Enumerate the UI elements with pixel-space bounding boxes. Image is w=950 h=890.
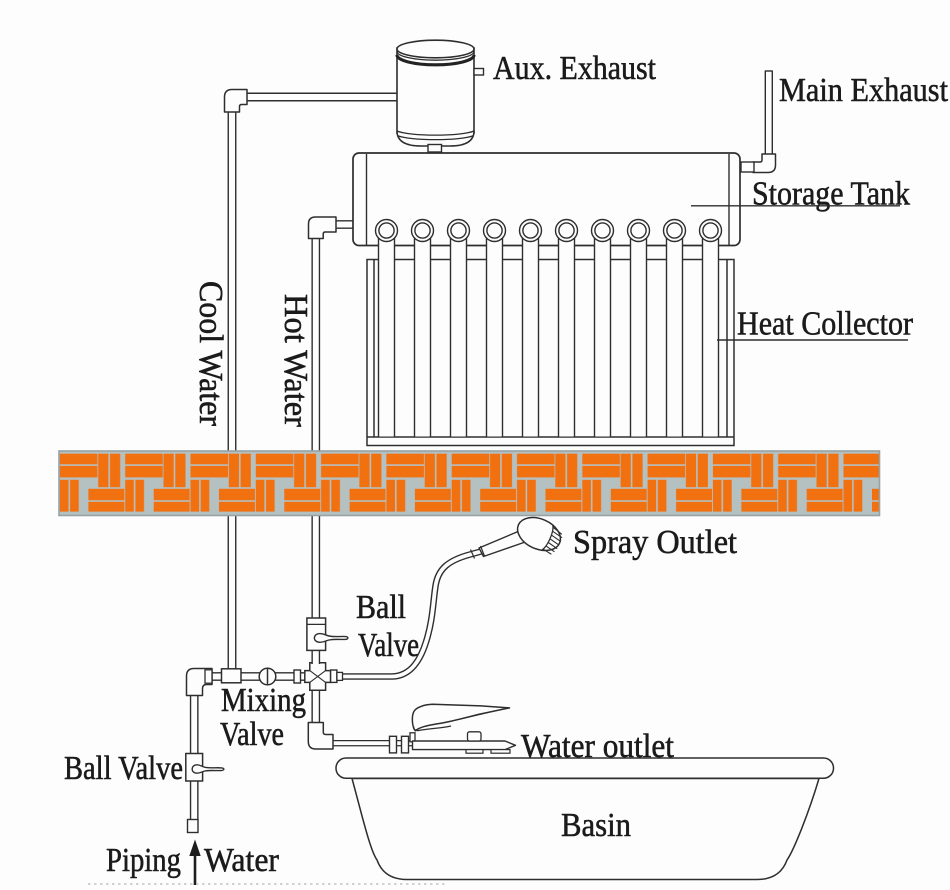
svg-text:Heat Collector: Heat Collector (737, 306, 914, 343)
svg-text:Spray Outlet: Spray Outlet (573, 524, 738, 561)
svg-text:Valve: Valve (220, 716, 284, 753)
svg-text:Ball: Ball (356, 589, 406, 626)
svg-text:Aux. Exhaust: Aux. Exhaust (493, 50, 656, 87)
svg-text:Ball Valve: Ball Valve (64, 750, 183, 787)
svg-text:Main Exhaust: Main Exhaust (779, 72, 948, 109)
svg-text:Storage Tank: Storage Tank (752, 176, 910, 213)
svg-text:Piping: Piping (106, 842, 181, 879)
svg-text:Basin: Basin (561, 807, 631, 844)
svg-text:Water: Water (204, 842, 280, 879)
svg-text:Cool Water: Cool Water (192, 281, 229, 427)
svg-text:Water outlet: Water outlet (521, 728, 675, 765)
svg-text:Valve: Valve (358, 627, 419, 664)
svg-text:Mixing: Mixing (221, 682, 306, 719)
svg-text:Hot Water: Hot Water (277, 294, 314, 428)
